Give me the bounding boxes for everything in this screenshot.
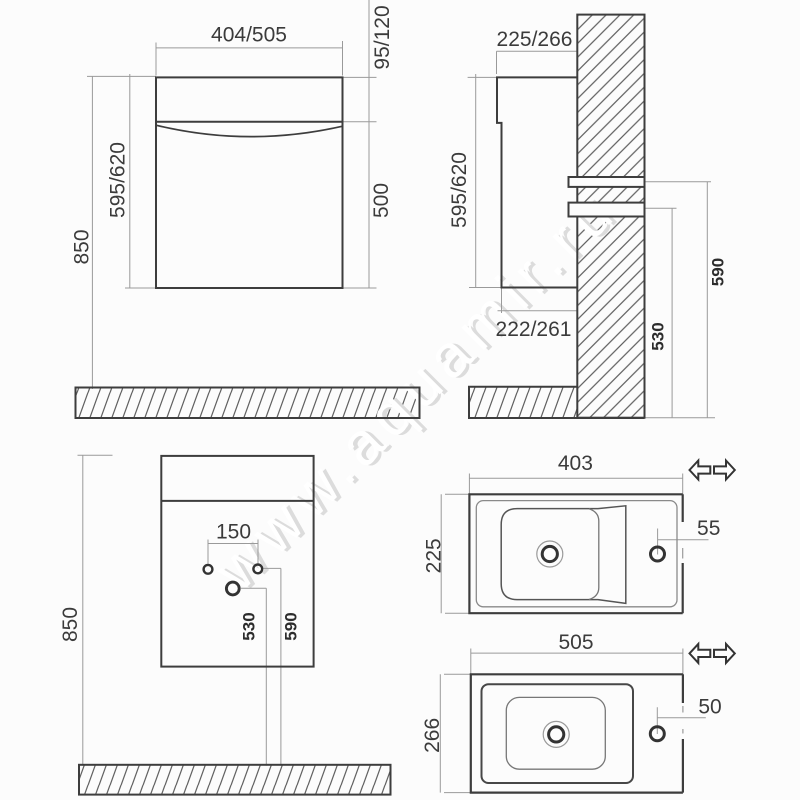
svg-text:150: 150 [216, 521, 251, 544]
svg-text:222/261: 222/261 [496, 318, 572, 341]
svg-text:505: 505 [558, 631, 593, 654]
svg-text:225: 225 [423, 538, 446, 573]
svg-text:403: 403 [558, 452, 593, 475]
svg-text:595/620: 595/620 [448, 152, 471, 228]
svg-text:590: 590 [282, 612, 301, 640]
svg-text:266: 266 [421, 718, 444, 753]
svg-text:50: 50 [698, 696, 721, 719]
svg-text:500: 500 [370, 183, 393, 218]
svg-text:95/120: 95/120 [371, 5, 394, 69]
svg-text:595/620: 595/620 [107, 142, 130, 218]
svg-text:404/505: 404/505 [211, 24, 287, 47]
svg-text:530: 530 [239, 612, 258, 640]
svg-text:225/266: 225/266 [497, 28, 573, 51]
svg-text:850: 850 [71, 229, 94, 264]
svg-text:530: 530 [649, 322, 668, 350]
svg-text:55: 55 [697, 517, 720, 540]
svg-text:850: 850 [59, 607, 82, 642]
svg-text:590: 590 [709, 258, 728, 286]
